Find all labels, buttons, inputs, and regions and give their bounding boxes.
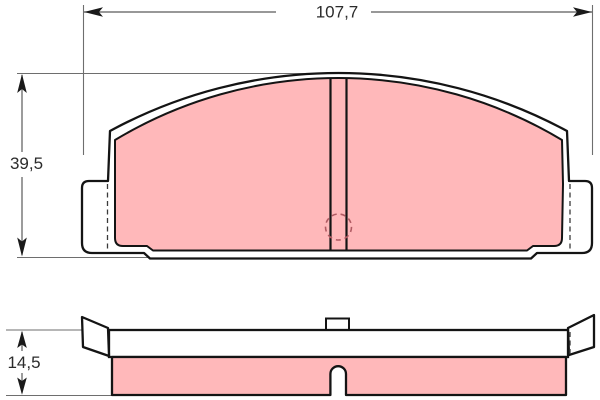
edge-backplate: [109, 330, 568, 357]
dimension-thickness: 14,5: [7, 331, 40, 395]
dim-width-label: 107,7: [316, 3, 359, 22]
front-view: [82, 73, 592, 259]
dim-height-label: 39,5: [10, 154, 43, 173]
edge-center-tab: [326, 319, 349, 331]
edge-ear-right: [568, 315, 594, 355]
dimension-height: 39,5: [10, 74, 43, 257]
edge-view: [82, 315, 594, 395]
dim-thickness-label: 14,5: [7, 353, 40, 372]
technical-drawing: 107,7 39,5 14,5: [0, 0, 600, 400]
edge-friction-material: [112, 357, 566, 395]
edge-ear-left: [82, 317, 109, 356]
dimension-width: 107,7: [84, 3, 592, 22]
